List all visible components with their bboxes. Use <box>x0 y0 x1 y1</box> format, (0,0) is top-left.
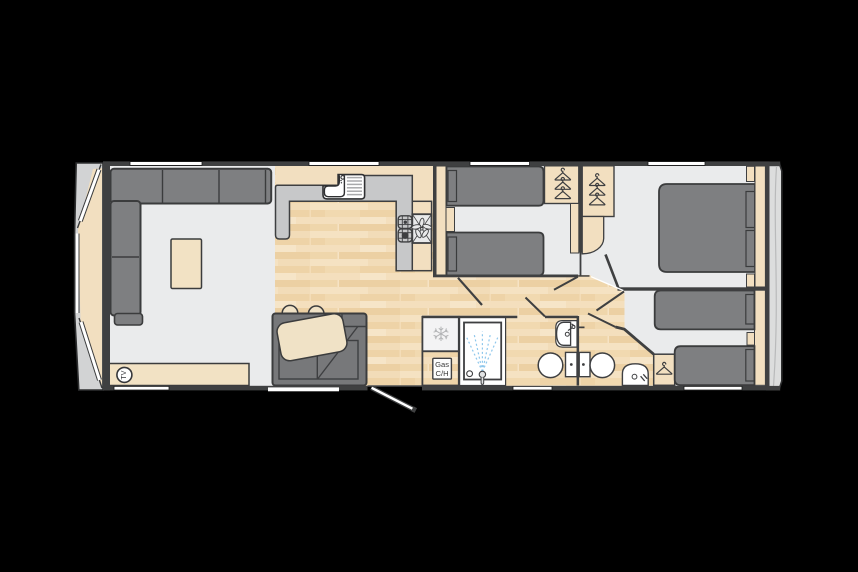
svg-text:TV: TV <box>121 370 128 379</box>
svg-text:Gas: Gas <box>435 360 449 369</box>
svg-text:C/H: C/H <box>436 369 449 378</box>
